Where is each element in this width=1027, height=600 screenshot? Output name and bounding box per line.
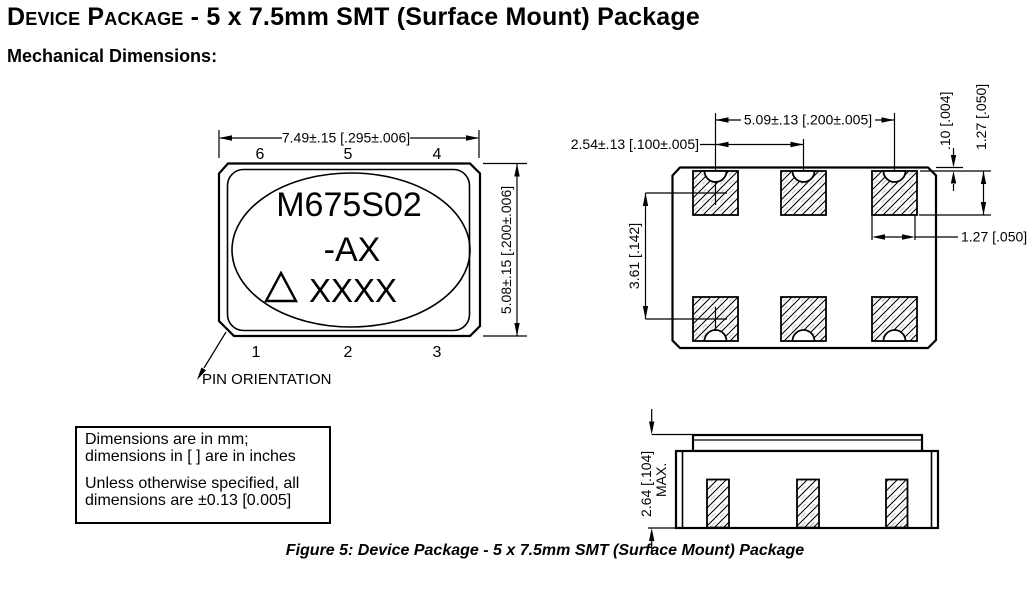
width-dimension-label: 7.49±.15 [.295±.006] — [282, 130, 410, 146]
pin-orientation-label: PIN ORIENTATION — [202, 371, 331, 388]
side-view-lid — [693, 435, 922, 451]
edge-offset-dimension-label: .10 [.004] — [937, 92, 953, 150]
pin-3-label: 3 — [433, 344, 442, 361]
pin-6-label: 6 — [256, 146, 265, 163]
pin-1-label: 1 — [252, 344, 261, 361]
height-dimension-label: 5.08±.15 [.200±.006] — [498, 186, 514, 314]
package-side-view: 2.64 [.104] MAX. — [638, 409, 938, 551]
drawing-notes-box: Dimensions are in mm; dimensions in [ ] … — [75, 426, 331, 524]
pin-5-label: 5 — [344, 146, 353, 163]
date-code-marking: XXXX — [309, 272, 397, 309]
notes-units-paragraph: Dimensions are in mm; dimensions in [ ] … — [85, 431, 325, 465]
package-top-view: M675S02 -AX XXXX 6 5 4 1 2 3 7.49 — [197, 130, 527, 389]
part-number-marking: M675S02 — [276, 186, 422, 224]
row-spacing-dimension-label: 3.61 [.142] — [626, 223, 642, 289]
pad-span-dimension-label: 5.09±.13 [.200±.005] — [744, 112, 872, 128]
pin-4-label: 4 — [433, 146, 442, 163]
pin-2-label: 2 — [344, 344, 353, 361]
land-pattern-view: 5.09±.13 [.200±.005] 2.54±.13 [.100±.005… — [571, 84, 1027, 348]
max-height-dimension-label: 2.64 [.104] — [638, 451, 654, 517]
notes-tolerance-paragraph: Unless otherwise specified, all dimensio… — [85, 475, 325, 509]
figure-caption: Figure 5: Device Package - 5 x 7.5mm SMT… — [215, 542, 875, 560]
datasheet-page: Device Package - 5 x 7.5mm SMT (Surface … — [0, 0, 1027, 600]
max-height-qualifier-label: MAX. — [653, 463, 669, 497]
pad-height-dimension-label: 1.27 [.050] — [973, 84, 989, 150]
pad-width-dimension-label: 1.27 [.050] — [961, 229, 1027, 245]
part-suffix-marking: -AX — [324, 231, 381, 269]
pin-orientation-leader — [204, 332, 226, 368]
pad-pitch-dimension-label: 2.54±.13 [.100±.005] — [571, 136, 699, 152]
